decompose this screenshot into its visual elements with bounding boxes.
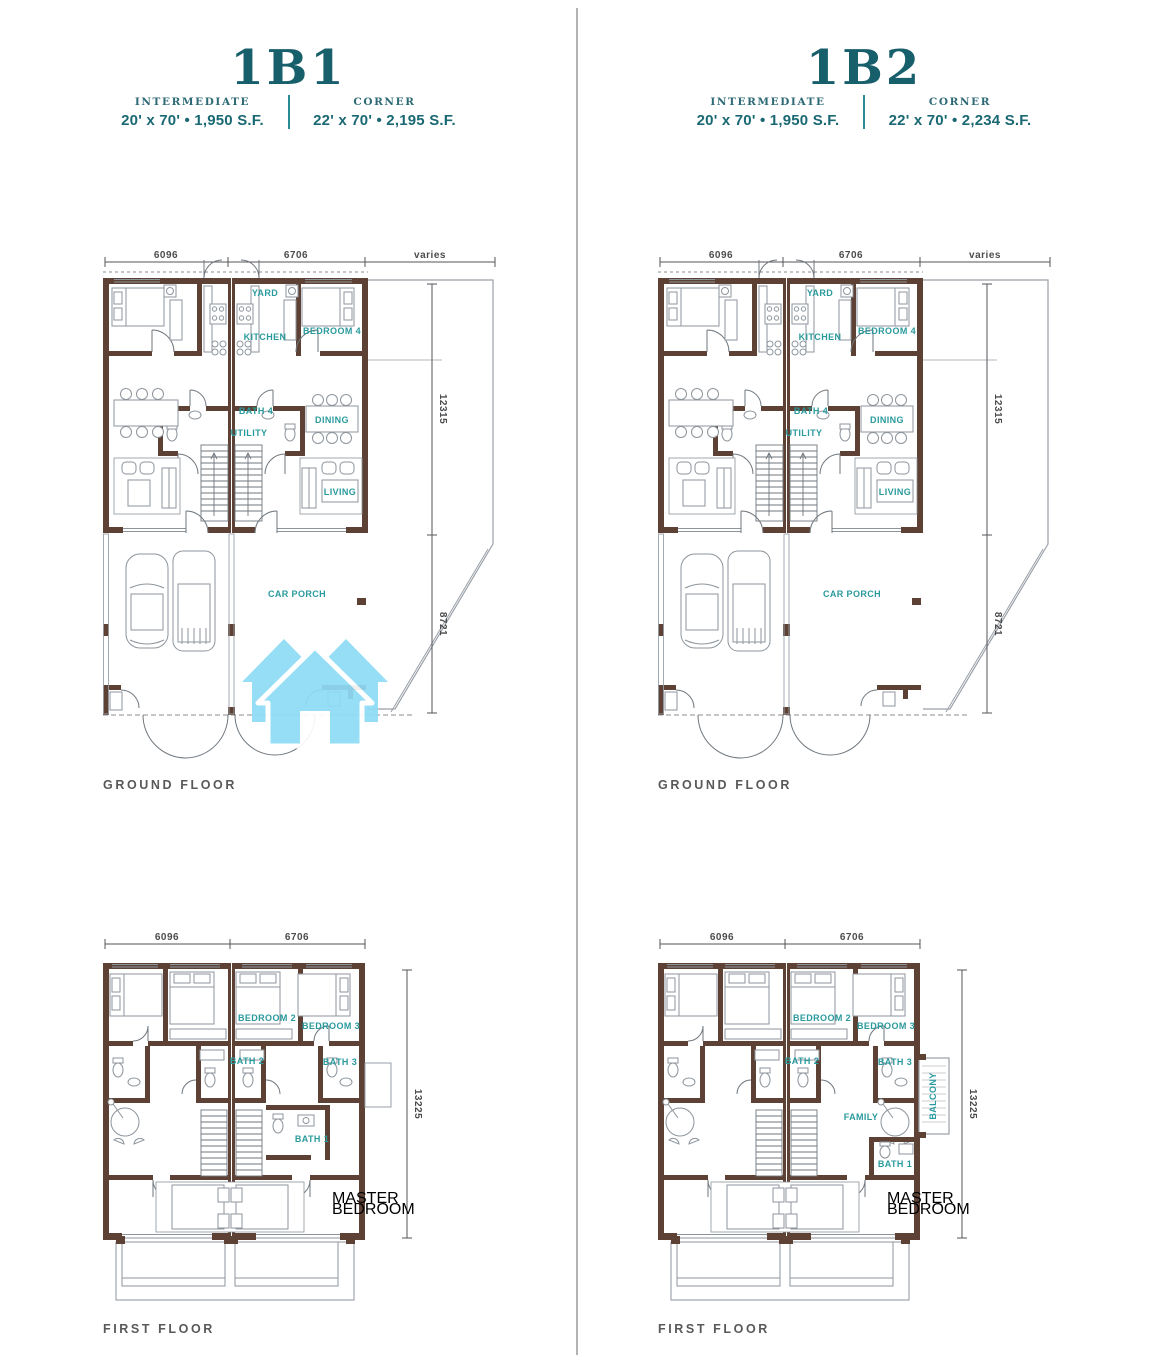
- spec-intermediate-label: INTERMEDIATE: [108, 96, 278, 108]
- spec-divider: [288, 95, 290, 129]
- spec-corner-value: 22' x 70' • 2,234 S.F.: [875, 112, 1045, 129]
- spec-intermediate-value: 20' x 70' • 1,950 S.F.: [683, 112, 853, 129]
- caption-ground-floor-1b2: GROUND FLOOR: [658, 778, 792, 792]
- spec-divider: [863, 95, 865, 129]
- ground-floor-plan-1b1: [100, 248, 520, 793]
- ground-floor-plan-1b2: [655, 248, 1075, 793]
- spec-corner: CORNER 22' x 70' • 2,195 S.F.: [300, 96, 470, 129]
- first-floor-plan-1b1: [100, 930, 440, 1350]
- caption-ground-floor-1b1: GROUND FLOOR: [103, 778, 237, 792]
- unit-1b1-panel: 1B1 INTERMEDIATE 20' x 70' • 1,950 S.F. …: [0, 0, 577, 1360]
- specs-1b1: INTERMEDIATE 20' x 70' • 1,950 S.F. CORN…: [0, 95, 577, 129]
- caption-first-floor-1b1: FIRST FLOOR: [103, 1322, 215, 1336]
- spec-intermediate-label: INTERMEDIATE: [683, 96, 853, 108]
- spec-corner: CORNER 22' x 70' • 2,234 S.F.: [875, 96, 1045, 129]
- floorplan-sheet: 1B1 INTERMEDIATE 20' x 70' • 1,950 S.F. …: [0, 0, 1151, 1360]
- unit-title-1b1: 1B1: [0, 40, 577, 96]
- first-floor-plan-1b2: [655, 930, 995, 1350]
- caption-first-floor-1b2: FIRST FLOOR: [658, 1322, 770, 1336]
- unit-1b2-panel: 1B2 INTERMEDIATE 20' x 70' • 1,950 S.F. …: [577, 0, 1151, 1360]
- spec-corner-value: 22' x 70' • 2,195 S.F.: [300, 112, 470, 129]
- spec-intermediate: INTERMEDIATE 20' x 70' • 1,950 S.F.: [108, 96, 278, 129]
- spec-corner-label: CORNER: [300, 96, 470, 108]
- spec-corner-label: CORNER: [875, 96, 1045, 108]
- specs-1b2: INTERMEDIATE 20' x 70' • 1,950 S.F. CORN…: [577, 95, 1151, 129]
- spec-intermediate: INTERMEDIATE 20' x 70' • 1,950 S.F.: [683, 96, 853, 129]
- watermark-houses: [242, 639, 388, 746]
- spec-intermediate-value: 20' x 70' • 1,950 S.F.: [108, 112, 278, 129]
- unit-title-1b2: 1B2: [577, 40, 1151, 96]
